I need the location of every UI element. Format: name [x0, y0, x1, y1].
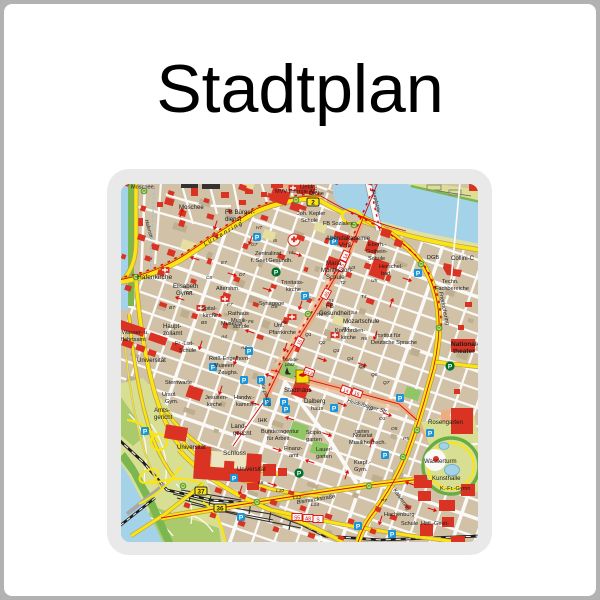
svg-text:H: H	[306, 312, 309, 317]
svg-text:Kunsthalle: Kunsthalle	[432, 475, 461, 482]
svg-text:Schule: Schule	[326, 274, 345, 281]
svg-text:P: P	[383, 453, 388, 460]
svg-text:Konkordien-: Konkordien-	[335, 328, 365, 334]
svg-text:Herschel-: Herschel-	[379, 264, 403, 270]
svg-text:Lauer-: Lauer-	[316, 447, 332, 453]
svg-text:U5: U5	[371, 278, 377, 284]
svg-text:Institut für: Institut für	[376, 333, 401, 339]
svg-text:P: P	[255, 235, 260, 242]
svg-text:P: P	[303, 294, 308, 301]
svg-text:H: H	[437, 326, 440, 331]
svg-text:Bundesagentur: Bundesagentur	[261, 429, 299, 435]
svg-text:Gesundheit: Gesundheit	[319, 310, 350, 317]
svg-text:kirche: kirche	[286, 287, 301, 293]
svg-text:Elisabeth: Elisabeth	[173, 283, 198, 290]
svg-text:Kurpf.-: Kurpf.-	[354, 460, 371, 466]
svg-text:I6: I6	[273, 238, 277, 244]
svg-text:B7: B7	[169, 305, 175, 311]
svg-text:Abendakademie: Abendakademie	[326, 235, 371, 242]
svg-text:Amts-: Amts-	[154, 407, 170, 414]
svg-text:P: P	[239, 515, 244, 522]
svg-text:Jesuiten-: Jesuiten-	[205, 395, 228, 401]
svg-text:L10: L10	[276, 488, 284, 494]
svg-text:R4: R4	[343, 326, 349, 332]
svg-text:L14: L14	[311, 502, 319, 508]
svg-text:R1: R1	[317, 312, 323, 318]
svg-text:Land-: Land-	[231, 423, 247, 430]
svg-text:DGB: DGB	[427, 255, 439, 261]
svg-text:L12: L12	[293, 495, 301, 501]
svg-text:P: P	[247, 349, 252, 356]
svg-text:Moschee.: Moschee.	[131, 185, 156, 191]
svg-text:Zentralinst.: Zentralinst.	[255, 251, 283, 257]
svg-text:P: P	[428, 431, 433, 438]
svg-text:Moschee: Moschee	[179, 204, 204, 211]
svg-text:D7: D7	[239, 272, 245, 278]
svg-text:P: P	[274, 269, 279, 276]
svg-text:H: H	[352, 223, 355, 228]
svg-text:Rosengarten: Rosengarten	[428, 419, 463, 426]
svg-text:gericht: gericht	[154, 414, 173, 421]
svg-text:L8: L8	[258, 480, 264, 486]
svg-text:I4: I4	[289, 250, 293, 256]
svg-text:P: P	[416, 271, 421, 278]
svg-text:f. Seel.Gesundh.: f. Seel.Gesundh.	[251, 258, 293, 264]
svg-text:P: P	[398, 396, 403, 403]
svg-text:Sternwarte: Sternwarte	[165, 380, 192, 386]
svg-text:Handw.-: Handw.-	[234, 395, 255, 401]
svg-text:Stadthaus: Stadthaus	[284, 387, 311, 394]
svg-text:Musikhochsch.: Musikhochsch.	[349, 440, 386, 446]
svg-text:H: H	[294, 198, 297, 203]
svg-text:O5: O5	[391, 426, 398, 432]
svg-text:Dalberg: Dalberg	[304, 398, 325, 405]
svg-text:O3: O3	[379, 416, 386, 422]
svg-text:G7: G7	[251, 242, 258, 248]
svg-text:Schule: Schule	[401, 521, 418, 527]
svg-text:C8: C8	[206, 275, 212, 281]
svg-text:F6: F6	[248, 319, 254, 325]
svg-text:E7: E7	[221, 260, 227, 266]
svg-text:Collini-C: Collini-C	[451, 255, 475, 262]
svg-text:Wasser- u.: Wasser- u.	[122, 330, 149, 336]
svg-text:H: H	[255, 500, 258, 505]
svg-text:haus: haus	[311, 406, 323, 412]
svg-text:für Arbeit: für Arbeit	[267, 436, 290, 442]
svg-text:S4: S4	[351, 310, 357, 316]
svg-text:Q7: Q7	[383, 380, 390, 386]
svg-text:Mozartschule: Mozartschule	[343, 318, 380, 325]
svg-text:Schule: Schule	[301, 218, 318, 224]
svg-text:K.-Fr.-Gymn: K.-Fr.-Gymn	[440, 486, 470, 492]
svg-text:Q5: Q5	[359, 364, 366, 370]
svg-text:Gym.: Gym.	[354, 467, 368, 473]
svg-text:T2: T2	[340, 280, 346, 286]
svg-text:H: H	[415, 428, 418, 433]
svg-text:Museen: Museen	[214, 363, 234, 369]
svg-text:Heil.-Geist-: Heil.-Geist-	[421, 521, 449, 527]
svg-text:P: P	[143, 429, 148, 436]
svg-text:P5: P5	[403, 436, 409, 442]
svg-text:kirche: kirche	[341, 335, 356, 341]
svg-text:A4: A4	[220, 334, 227, 340]
svg-text:Fr.-List-: Fr.-List-	[175, 341, 194, 347]
svg-text:H: H	[401, 455, 404, 460]
svg-text:garten: garten	[316, 454, 332, 460]
svg-text:amt: amt	[289, 453, 299, 459]
svg-text:Schule: Schule	[179, 348, 196, 354]
svg-text:ffahrtsamt: ffahrtsamt	[121, 337, 146, 343]
svg-text:Reiß-Engelhorn-: Reiß-Engelhorn-	[209, 356, 250, 362]
svg-text:P: P	[356, 524, 361, 531]
svg-text:Wasserturm: Wasserturm	[424, 458, 457, 465]
svg-text:Museum: Museum	[221, 321, 243, 327]
svg-text:platz: platz	[284, 362, 295, 367]
svg-text:A2: A2	[240, 345, 247, 351]
svg-text:Deutsche Sprache: Deutsche Sprache	[371, 340, 417, 346]
svg-text:Hafenkirche: Hafenkirche	[137, 274, 173, 281]
svg-text:Q6: Q6	[371, 372, 378, 378]
svg-text:FB: FB	[326, 303, 334, 310]
svg-text:theater: theater	[453, 348, 475, 355]
svg-text:Q3: Q3	[333, 348, 340, 354]
svg-text:kirche: kirche	[203, 313, 218, 319]
svg-text:garten: garten	[355, 429, 369, 435]
svg-text:P: P	[297, 470, 302, 477]
svg-text:P: P	[448, 363, 453, 370]
svg-text:Ursul.: Ursul.	[162, 392, 177, 398]
svg-text:Q1: Q1	[305, 332, 312, 338]
svg-text:H: H	[181, 484, 184, 489]
svg-text:Gothein-: Gothein-	[366, 249, 388, 255]
svg-text:S1: S1	[328, 298, 334, 304]
svg-text:Eberh.-: Eberh.-	[368, 242, 386, 248]
svg-text:G6: G6	[271, 304, 278, 310]
svg-text:Zeughs.: Zeughs.	[218, 370, 239, 376]
svg-text:Universität: Universität	[177, 444, 206, 451]
svg-text:FB Bürger-: FB Bürger-	[225, 209, 255, 216]
svg-text:F7: F7	[227, 302, 233, 308]
svg-text:P: P	[390, 532, 395, 539]
svg-text:bad: bad	[381, 271, 390, 277]
svg-text:P7: P7	[381, 498, 387, 504]
svg-text:Scipio-: Scipio-	[306, 430, 323, 436]
svg-text:F5: F5	[281, 320, 287, 326]
svg-text:kirche: kirche	[207, 402, 222, 408]
svg-text:FB Soziales: FB Soziales	[323, 221, 353, 227]
svg-text:C7: C7	[186, 290, 192, 296]
svg-text:Schule: Schule	[368, 256, 385, 262]
svg-text:National-: National-	[451, 341, 478, 348]
svg-text:T4: T4	[361, 294, 367, 300]
svg-text:garten: garten	[306, 437, 322, 443]
svg-text:Q4: Q4	[347, 356, 354, 362]
svg-text:N2: N2	[367, 406, 373, 412]
svg-text:Haupt-: Haupt-	[163, 323, 181, 330]
svg-text:Hachenburg: Hachenburg	[384, 512, 414, 518]
svg-text:U3: U3	[349, 265, 355, 271]
svg-text:Joh. Kepler: Joh. Kepler	[297, 211, 325, 217]
svg-text:H: H	[419, 262, 422, 267]
svg-text:Finanz-: Finanz-	[284, 446, 303, 452]
svg-text:H: H	[367, 484, 370, 489]
svg-text:B5: B5	[201, 320, 207, 326]
svg-text:IHK: IHK	[258, 418, 268, 424]
svg-text:Techn.: Techn.	[442, 279, 459, 285]
svg-text:Spital-: Spital-	[201, 306, 217, 312]
svg-text:H7: H7	[256, 225, 262, 231]
svg-text:Q2: Q2	[319, 340, 326, 346]
svg-text:MVV Energie AG: MVV Energie AG	[275, 189, 317, 195]
svg-text:Universität: Universität	[137, 357, 166, 364]
svg-text:zollamt: zollamt	[163, 330, 183, 337]
svg-text:P: P	[284, 407, 289, 414]
svg-text:Schloss: Schloss	[223, 450, 247, 457]
svg-text:R6: R6	[361, 336, 367, 342]
svg-text:Universität: Universität	[237, 466, 266, 473]
svg-text:P: P	[332, 406, 337, 413]
svg-text:Rathaus: Rathaus	[228, 311, 249, 317]
svg-text:Maria: Maria	[326, 260, 342, 267]
svg-text:Gym.: Gym.	[165, 399, 179, 405]
svg-text:P: P	[242, 378, 247, 385]
svg-text:VHS: VHS	[339, 242, 352, 249]
svg-text:Pfarrkirche: Pfarrkirche	[269, 330, 296, 336]
svg-text:Trinitatis-: Trinitatis-	[281, 280, 304, 286]
svg-text:kammer: kammer	[236, 402, 256, 408]
svg-text:P: P	[232, 476, 237, 483]
svg-text:gericht: gericht	[233, 430, 252, 437]
svg-text:Altershm.: Altershm.	[216, 286, 240, 292]
